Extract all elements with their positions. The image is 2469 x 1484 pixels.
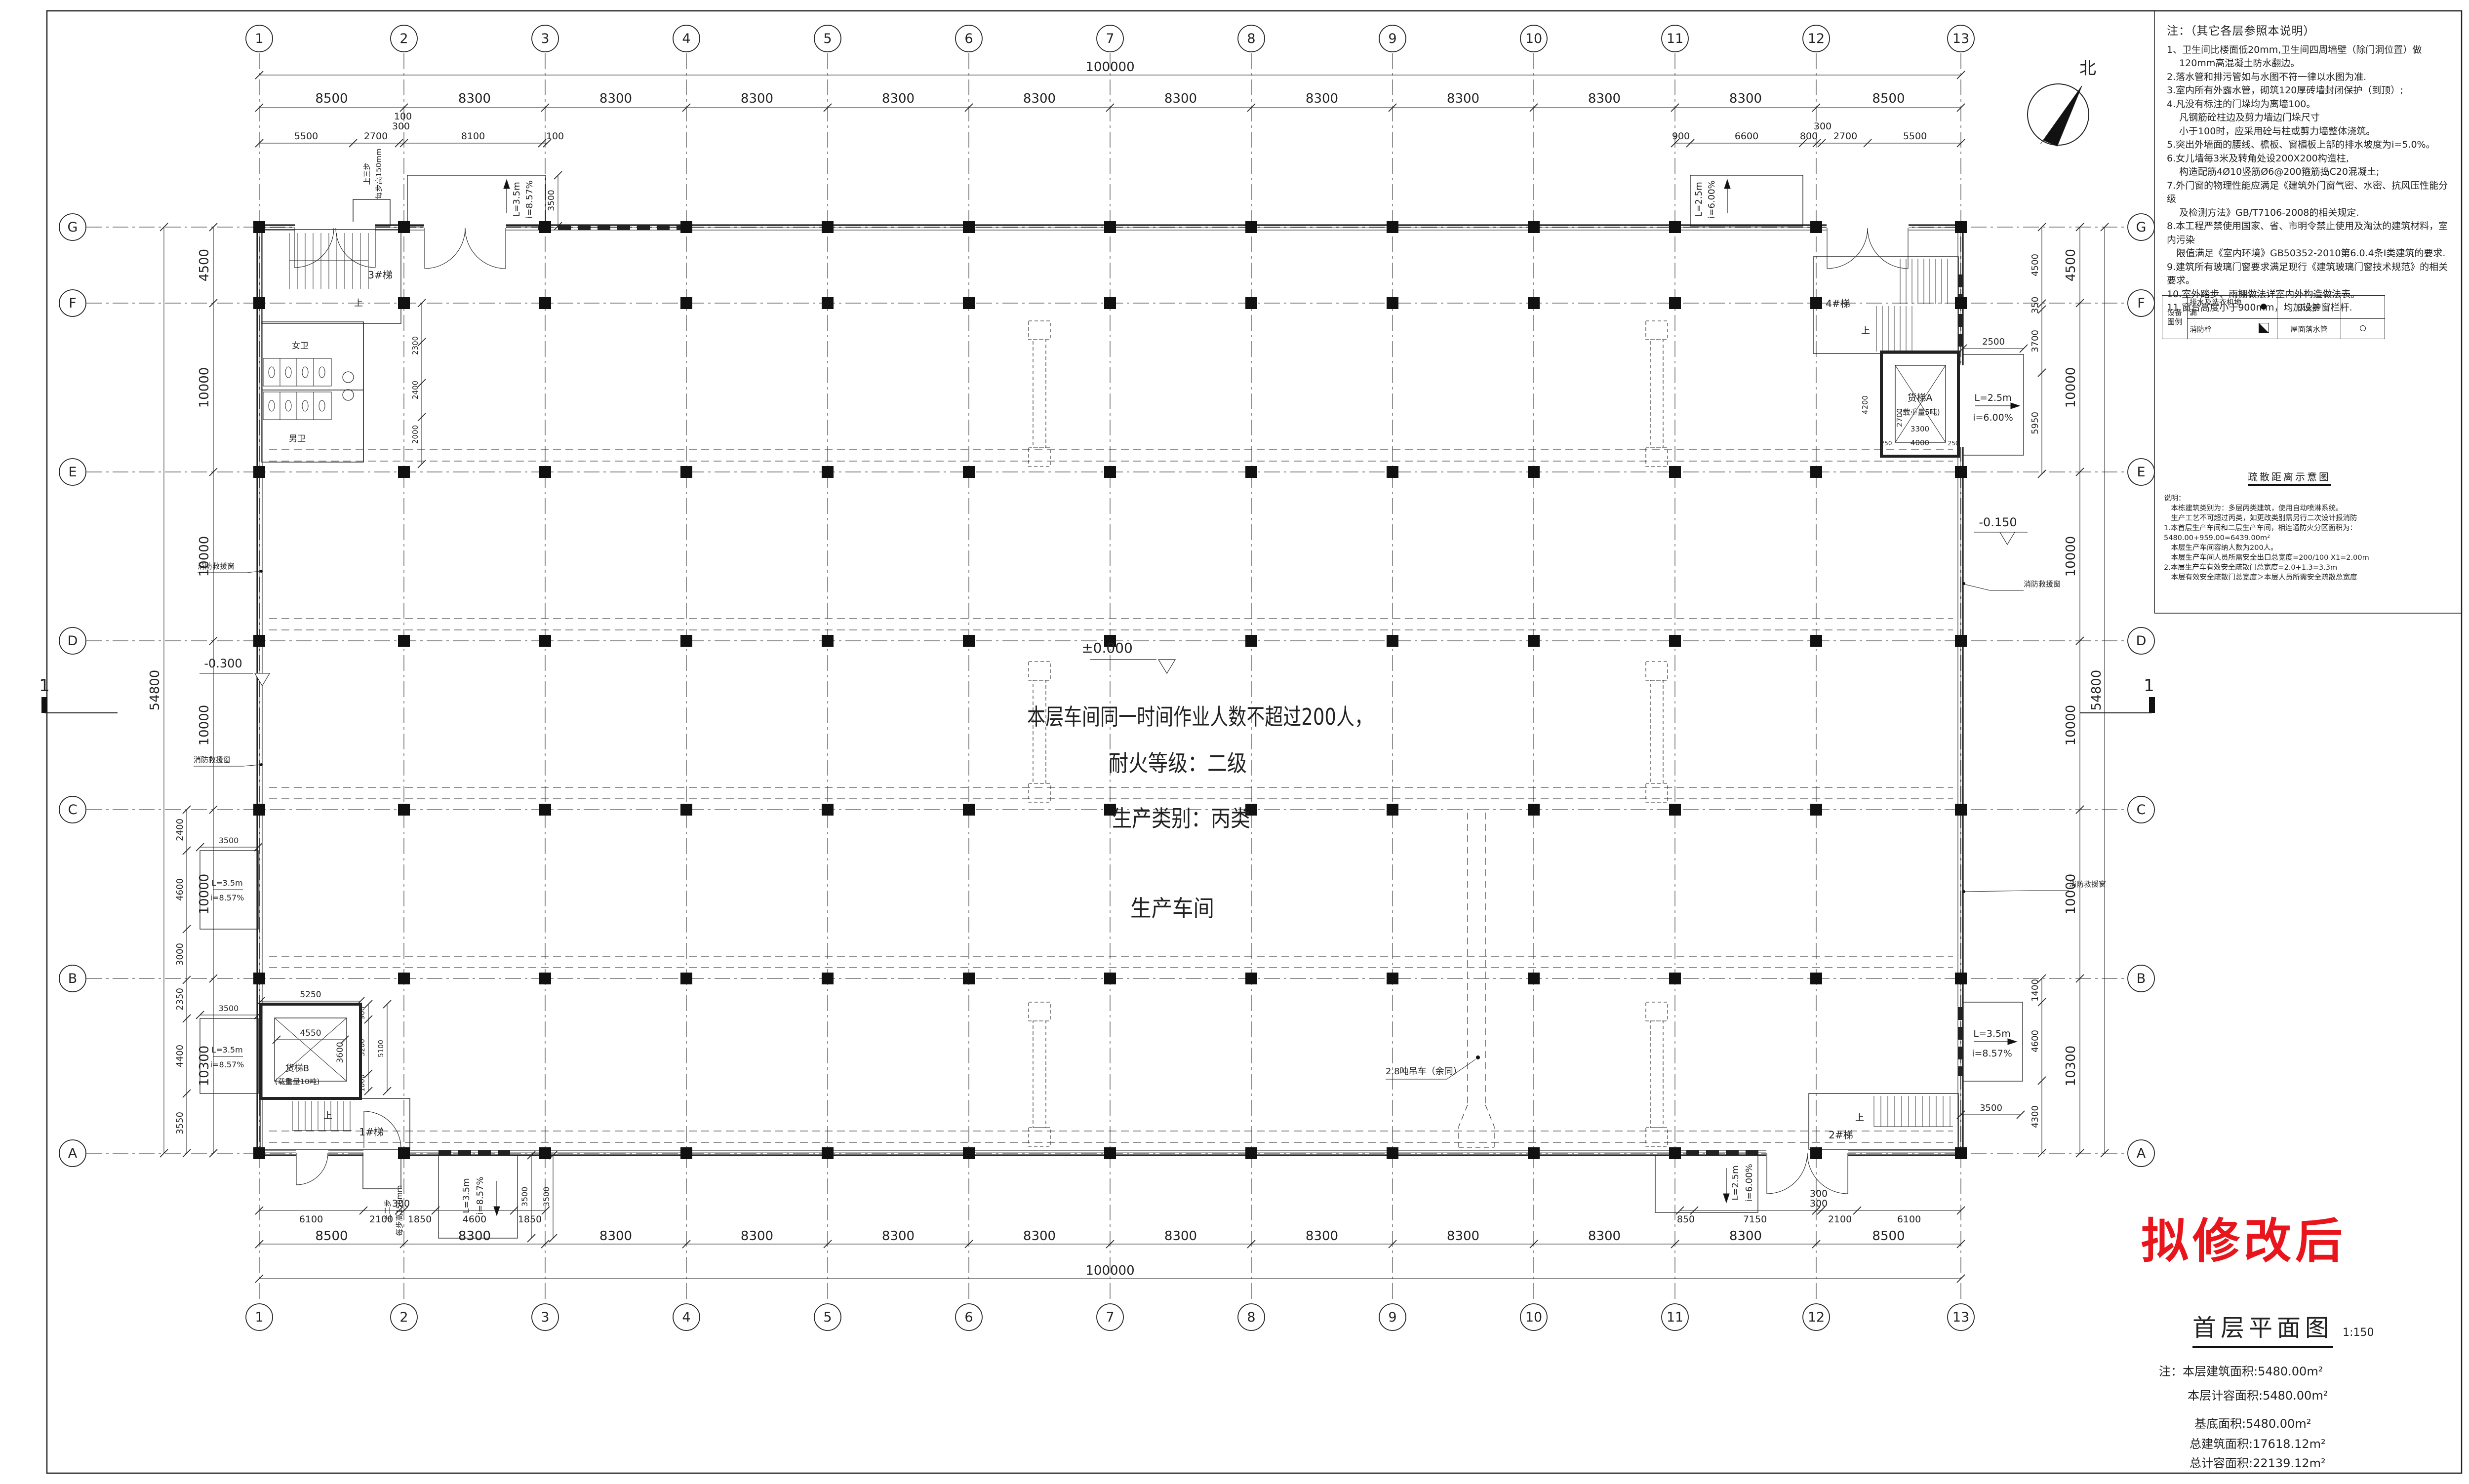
dim-bay: 8300 <box>882 1229 915 1244</box>
grid-bubble-label: 5 <box>823 1310 832 1325</box>
dim-label: 900 <box>358 1007 366 1020</box>
grid-bubble-label: 13 <box>1952 1310 1969 1325</box>
dim-bay: 8500 <box>1872 91 1905 106</box>
column <box>963 973 975 984</box>
grid-bubble-label: A <box>2137 1146 2146 1161</box>
column <box>1669 973 1681 984</box>
dim-label: 2700 <box>1895 408 1904 427</box>
crane-column <box>1646 783 1668 802</box>
downpipe-symbol-icon <box>2360 325 2366 331</box>
crane-column <box>1646 448 1668 467</box>
legend-row: 消防栓 屋面落水管 <box>2162 319 2385 339</box>
dim-sub: 300 <box>1814 121 1832 132</box>
column <box>822 635 834 647</box>
dim-row: 10000 <box>2064 367 2078 408</box>
column <box>1810 221 1822 233</box>
dim-label: 2500 <box>1982 337 2005 347</box>
dim-sub: 6600 <box>1735 131 1758 142</box>
section-marker-label: 1 <box>39 676 50 696</box>
dim-row: 10000 <box>2064 536 2078 577</box>
grid-bubble-label: C <box>2137 802 2146 818</box>
legend-item-extinguisher: 灭火器 <box>2277 296 2341 319</box>
dim-label: 250 <box>1881 440 1892 447</box>
column <box>1387 973 1398 984</box>
dim-sub: 1400 <box>2030 979 2040 1002</box>
drain-symbol-icon <box>2261 304 2267 310</box>
column <box>1387 221 1398 233</box>
column <box>1810 804 1822 816</box>
column <box>1669 297 1681 309</box>
up-label: 上 <box>1855 1113 1864 1123</box>
area-line: 总建筑面积:17618.12m² <box>2190 1434 2328 1451</box>
door-arc <box>1827 228 1868 269</box>
dim-sub: 5500 <box>294 131 318 142</box>
leader-dot <box>260 763 263 766</box>
column <box>539 973 551 984</box>
section-marker <box>41 697 47 713</box>
grid-bubble-label: 9 <box>1388 1310 1396 1325</box>
grid-bubble-label: C <box>68 802 78 818</box>
grid-bubble-label: 3 <box>541 1310 549 1325</box>
drawing-scale: 1:150 <box>2343 1327 2374 1339</box>
dim-sub: 1850 <box>518 1214 542 1225</box>
dim-bay: 8300 <box>458 1229 491 1244</box>
canopy-label: L=2.5m <box>1974 392 2011 403</box>
dim-sub: 3000 <box>175 943 185 966</box>
dim-row: 10000 <box>197 367 212 408</box>
dim-bay: 8300 <box>1729 91 1762 106</box>
level-triangle <box>1158 660 1175 673</box>
dim-sub: 300 <box>392 1198 410 1209</box>
dim-sub: 2350 <box>175 988 185 1011</box>
up-label: 上 <box>1861 326 1870 336</box>
column <box>1245 973 1257 984</box>
squat-toilet-icon <box>302 367 308 378</box>
grid-bubble-label: 1 <box>255 1310 263 1325</box>
dim-bay: 8300 <box>1306 1229 1338 1244</box>
leader <box>194 765 260 766</box>
column <box>398 804 410 816</box>
column <box>1810 973 1822 984</box>
column <box>1245 466 1257 478</box>
lift-a-label: (载重量5吨) <box>1900 408 1940 417</box>
note-line: 3.室内所有外露水管，砌筑120厚砖墙封闭保护（到顶）; <box>2167 84 2457 98</box>
legend-header: 设备 图例 <box>2162 296 2188 339</box>
column <box>253 297 265 309</box>
dim-row: 10000 <box>197 874 212 915</box>
dim-sub: 8100 <box>461 131 485 142</box>
column <box>1669 804 1681 816</box>
dim-label: 4550 <box>300 1028 321 1038</box>
crane-column <box>1029 662 1050 680</box>
level-neg300: -0.300 <box>204 657 242 670</box>
column <box>680 1147 692 1159</box>
column <box>1810 1147 1822 1159</box>
dim-sub: 2100 <box>369 1214 393 1225</box>
grid-bubble-label: 7 <box>1106 1310 1114 1325</box>
dim-sub: 3550 <box>175 1112 185 1134</box>
equipment-legend-table: 设备 图例 排水及洗衣机地漏 灭火器 消防栓 屋面落水管 <box>2162 295 2385 339</box>
column <box>1528 804 1540 816</box>
column <box>253 804 265 816</box>
crane-label: 2.8吨吊车（余同） <box>1386 1066 1462 1077</box>
dim-sub: 4400 <box>175 1045 185 1067</box>
door-arc <box>1767 1153 1807 1194</box>
dim-total-height: 54800 <box>2089 670 2104 711</box>
dim-row: 10300 <box>197 1046 212 1087</box>
dim-sub: 7150 <box>1743 1214 1767 1225</box>
dim-total-height: 54800 <box>148 670 162 711</box>
up-label: 上 <box>354 298 363 309</box>
floor-plan-canvas: 2.8吨吊车（余同）L=3.5mi=8.57%L=2.5mi=6.00%L=2.… <box>0 0 2469 1484</box>
column <box>963 221 975 233</box>
column <box>963 297 975 309</box>
door-arc <box>336 228 375 268</box>
wc-stalls <box>263 358 331 386</box>
column <box>1387 804 1398 816</box>
dim-bay: 8300 <box>741 91 773 106</box>
legend-symbol-cell <box>2341 319 2385 339</box>
grid-bubble-label: G <box>68 220 78 235</box>
area-summary: 注：本层建筑面积:5480.00m² 本层计容面积:5480.00m² 基底面积… <box>2159 1362 2328 1471</box>
dim-sub: 4600 <box>2030 1030 2040 1053</box>
dim-row: 10000 <box>2064 705 2078 746</box>
canopy-label: L=3.5m <box>461 1178 472 1213</box>
door-arc <box>465 228 506 269</box>
column <box>1955 221 1967 233</box>
compass-needle <box>2043 86 2082 146</box>
dim-sub: 2100 <box>1828 1214 1852 1225</box>
column <box>253 466 265 478</box>
door-opening <box>295 222 375 234</box>
grid-bubble-label: 10 <box>1525 1310 1542 1325</box>
rescue-window-label: 消防救援窗 <box>2024 580 2061 588</box>
column <box>1245 297 1257 309</box>
grid-bubble-label: 7 <box>1106 31 1114 46</box>
column <box>253 1147 265 1159</box>
crane-column <box>1646 662 1668 680</box>
canopy-label: L=3.5m <box>512 182 522 217</box>
grid-bubble-label: 13 <box>1952 31 1969 46</box>
grid-bubble-label: F <box>69 296 77 311</box>
dim-label: 4200 <box>1861 395 1870 414</box>
dim-sub: 6100 <box>299 1214 323 1225</box>
area-line: 基底面积:5480.00m² <box>2194 1414 2328 1431</box>
crane-column <box>1650 680 1663 783</box>
arrow-up <box>504 180 510 189</box>
dim-label: 2000 <box>411 425 420 444</box>
dim-label: 3300 <box>1911 425 1929 433</box>
steps-note: 每步高150mm <box>374 149 383 199</box>
workshop-note-line2: 耐火等级：二级 <box>1109 750 1247 777</box>
dim-sub: 4600 <box>463 1214 486 1225</box>
column <box>1955 804 1967 816</box>
grid-bubble-label: E <box>2137 465 2145 480</box>
column <box>822 804 834 816</box>
column <box>680 635 692 647</box>
leader-dot <box>260 570 263 573</box>
crane-column <box>1029 783 1050 802</box>
dim-bay: 8500 <box>315 91 348 106</box>
grid-bubble-label: D <box>2136 633 2147 649</box>
column <box>1669 221 1681 233</box>
area-line: 注：本层建筑面积:5480.00m² <box>2159 1362 2328 1379</box>
column <box>1245 635 1257 647</box>
dim-bay: 8300 <box>599 91 632 106</box>
grid-bubble-label: 10 <box>1525 31 1542 46</box>
canopy-bottom-right <box>1655 1155 1758 1212</box>
drawing-sheet: 2.8吨吊车（余同）L=3.5mi=8.57%L=2.5mi=6.00%L=2.… <box>0 0 2469 1484</box>
dim-sub: 850 <box>1677 1214 1695 1225</box>
canopy-label: i=8.57% <box>475 1176 485 1214</box>
note-line: 9.建筑所有玻璃门窗要求满足现行《建筑玻璃门窗技术规范》的相关要求。 <box>2167 261 2457 288</box>
note-line: 构造配筋4Ø10竖筋Ø6@200箍筋捣C20混凝土; <box>2167 165 2457 179</box>
legend-item-downpipe: 屋面落水管 <box>2277 319 2341 339</box>
note-line: 6.女儿墙每3米及转角处设200X200构造柱, <box>2167 152 2457 166</box>
dim-sub: 5950 <box>2030 412 2040 434</box>
grid-bubble-label: F <box>2137 296 2145 311</box>
steps-note: 上三步 <box>362 162 371 185</box>
column <box>1104 466 1116 478</box>
dim-bay: 8300 <box>741 1229 773 1244</box>
grid-bubble-label: 8 <box>1247 1310 1255 1325</box>
column <box>539 1147 551 1159</box>
female-wc-label: 女卫 <box>292 341 309 351</box>
column <box>963 635 975 647</box>
dim-sub: 100 <box>546 131 564 142</box>
crane-route-dot <box>1476 1055 1480 1059</box>
grid-bubble-label: 3 <box>541 31 549 46</box>
squat-toilet-icon <box>302 400 308 411</box>
general-notes-panel: 注：（其它各层参照本说明） 1、卫生间比楼面低20mm,卫生间四周墙壁（除门洞位… <box>2167 25 2457 315</box>
column <box>822 1147 834 1159</box>
crane-column <box>1646 1128 1668 1146</box>
grid-bubble-label: 2 <box>399 1310 408 1325</box>
grid-bubble-label: 12 <box>1808 31 1825 46</box>
note-line: 小于100时，应采用砼与柱或剪力墙整体浇筑。 <box>2167 125 2457 139</box>
crane-column <box>1033 680 1046 783</box>
canopy-label: L=3.5m <box>211 878 242 888</box>
column <box>680 297 692 309</box>
crane-column <box>1029 1128 1050 1146</box>
dim-label: 3500 <box>219 1004 239 1013</box>
column <box>1669 635 1681 647</box>
dim-sub: 4600 <box>175 878 185 901</box>
arrow-down <box>494 1207 500 1215</box>
column <box>398 973 410 984</box>
canopy-label: i=8.57% <box>524 180 535 218</box>
leader-dot <box>1962 890 1965 893</box>
dim-bay: 8300 <box>882 91 915 106</box>
column <box>1387 1147 1398 1159</box>
grid-bubble-label: 9 <box>1388 31 1396 46</box>
dim-bay: 8300 <box>1023 91 1056 106</box>
notes-title: 注：（其它各层参照本说明） <box>2167 25 2457 39</box>
crane-column <box>1033 1021 1046 1128</box>
grid-bubble-label: 11 <box>1667 31 1683 46</box>
legend-symbol-cell <box>2341 296 2385 319</box>
dim-label: 1000 <box>358 1074 366 1092</box>
male-wc-label: 男卫 <box>289 434 306 444</box>
arrow-down <box>1723 1194 1729 1203</box>
column <box>1245 1147 1257 1159</box>
squat-toilet-icon <box>269 367 275 378</box>
grid-bubble-label: 6 <box>964 31 973 46</box>
column <box>822 466 834 478</box>
dim-sub: 350 <box>2030 297 2040 313</box>
workshop-note-line1: 本层车间同一时间作业人数不超过200人， <box>1027 703 1373 730</box>
column <box>963 804 975 816</box>
workshop-name: 生产车间 <box>1130 895 1214 922</box>
column <box>539 466 551 478</box>
lift-a-label: 货梯A <box>1908 392 1933 403</box>
column <box>398 1147 410 1159</box>
lift-b-label: (载重量10吨) <box>275 1077 320 1086</box>
grid-bubble-label: 5 <box>823 31 832 46</box>
column <box>680 973 692 984</box>
dim-row: 4500 <box>197 249 212 281</box>
column <box>963 1147 975 1159</box>
dim-label: 2300 <box>411 336 420 355</box>
leader <box>1965 891 2069 892</box>
dim-label: 5250 <box>300 990 321 1000</box>
canopy-label: i=8.57% <box>1972 1048 2012 1059</box>
column <box>1245 221 1257 233</box>
column <box>539 635 551 647</box>
canopy-label: L=3.5m <box>1973 1028 2010 1039</box>
evac-line: 本层生产车间人员所需安全出口总宽度=200/100 X1=2.00m <box>2164 553 2458 563</box>
door-arc <box>294 228 334 268</box>
evacuation-title: 疏散距离示意图 <box>2248 472 2331 486</box>
dim-bay: 8300 <box>1306 91 1338 106</box>
canopy-label: L=3.5m <box>211 1045 242 1054</box>
column <box>1528 221 1540 233</box>
note-line: 120mm高混凝土防水翻边。 <box>2167 57 2457 71</box>
arrow-right <box>2011 403 2020 409</box>
column <box>822 973 834 984</box>
dim-sub: 800 <box>1800 131 1818 142</box>
canopy-label: L=2.5m <box>1730 1165 1741 1200</box>
note-line: 及检测方法》GB/T7106-2008的相关规定. <box>2167 206 2457 220</box>
dim-bay: 8300 <box>599 1229 632 1244</box>
north-label: 北 <box>2079 59 2096 78</box>
evac-line: 本栋建筑类别为：多层丙类建筑，使用自动喷淋系统。 <box>2164 504 2458 513</box>
dim-sub: 300 <box>392 121 410 132</box>
column <box>1810 297 1822 309</box>
up-label: 上 <box>323 1111 332 1121</box>
column <box>1528 973 1540 984</box>
legend-item-drain: 排水及洗衣机地漏 <box>2188 296 2250 319</box>
dim-label: 3500 <box>547 190 557 211</box>
dim-label: 3500 <box>520 1187 529 1207</box>
lift-b-label: 货梯B <box>285 1063 309 1074</box>
door-arc <box>425 228 465 269</box>
column <box>1104 297 1116 309</box>
grid-bubble-label: 8 <box>1247 31 1255 46</box>
dim-sub: 300 <box>1810 1198 1828 1209</box>
column <box>1528 635 1540 647</box>
column <box>398 466 410 478</box>
column <box>1955 1147 1967 1159</box>
grid-bubble-label: B <box>68 971 78 986</box>
dim-row: 4500 <box>2064 249 2078 281</box>
dim-label: 250 <box>1948 440 1959 447</box>
door-arc <box>1807 1153 1848 1194</box>
squat-toilet-icon <box>319 400 325 411</box>
legend-header-line: 设备 <box>2164 308 2185 317</box>
stair3-label: 3#梯 <box>368 269 392 281</box>
level-zero: ±0.000 <box>1081 640 1133 656</box>
column <box>822 221 834 233</box>
note-line: 1、卫生间比楼面低20mm,卫生间四周墙壁（除门洞位置）做 <box>2167 43 2457 57</box>
canopy-label: i=6.00% <box>1973 412 2013 423</box>
column <box>1810 635 1822 647</box>
dim-label: 3200 <box>358 1039 366 1056</box>
column <box>1955 297 1967 309</box>
legend-row: 设备 图例 排水及洗衣机地漏 灭火器 <box>2162 296 2385 319</box>
stair-room-1 <box>261 1098 410 1149</box>
column <box>680 804 692 816</box>
column <box>1528 1147 1540 1159</box>
dim-total-width: 100000 <box>1085 60 1134 75</box>
dim-row: 10000 <box>197 705 212 746</box>
dim-sub: 6100 <box>1897 1214 1921 1225</box>
column <box>1810 466 1822 478</box>
column <box>398 635 410 647</box>
note-line: 4.凡没有标注的门垛均为离墙100。 <box>2167 98 2457 112</box>
arrow-right <box>2008 1039 2017 1045</box>
dim-label: 2400 <box>411 381 420 399</box>
column <box>1387 466 1398 478</box>
column <box>680 221 692 233</box>
note-line: 5.突出外墙面的腰线、檐板、窗楣板上部的排水坡度为i=5.0%。 <box>2167 138 2457 152</box>
dim-bay: 8300 <box>1447 1229 1479 1244</box>
crane-route <box>1459 1105 1468 1147</box>
dim-label: 3500 <box>219 836 239 845</box>
grid-bubble-label: A <box>68 1146 78 1161</box>
dim-bay: 8300 <box>1164 91 1197 106</box>
dim-bay: 8500 <box>315 1229 348 1244</box>
level-triangle <box>2000 532 2015 545</box>
dim-bay: 8300 <box>1164 1229 1197 1244</box>
stair4-label: 4#梯 <box>1826 298 1850 310</box>
column <box>253 221 265 233</box>
canopy-label: i=8.57% <box>210 893 244 902</box>
column <box>1528 297 1540 309</box>
dim-sub: 4300 <box>2030 1105 2040 1128</box>
dim-bay: 8300 <box>1588 91 1621 106</box>
area-line: 总计容面积:22139.12m² <box>2190 1453 2328 1471</box>
leader <box>1965 585 2024 590</box>
grid-bubble-label: 2 <box>399 31 408 46</box>
column <box>1528 466 1540 478</box>
dim-label: 3600 <box>335 1042 345 1063</box>
workshop-note-line3: 生产类别：丙类 <box>1112 805 1250 832</box>
evac-line: 本层有效安全疏散门总宽度＞本层人员所需安全疏散总宽度 <box>2164 573 2458 583</box>
canopy-label: i=6.00% <box>1744 1164 1754 1202</box>
grid-bubble-label: D <box>68 633 78 649</box>
evac-line: 2.本层生产车有效安全疏散门总宽度=2.0+1.3=3.3m <box>2164 563 2458 573</box>
note-line: 8.本工程严禁使用国家、省、市明令禁止使用及淘汰的建筑材料，室内污染 <box>2167 220 2457 247</box>
dim-sub: 5500 <box>1903 131 1927 142</box>
legend-symbol-cell <box>2250 296 2277 319</box>
rescue-window-label: 消防救援窗 <box>194 755 231 764</box>
evacuation-notes-box: 疏散距离示意图 说明： 本栋建筑类别为：多层丙类建筑，使用自动喷淋系统。 生产工… <box>2164 472 2458 583</box>
section-marker-label: 1 <box>2144 676 2154 696</box>
grid-bubble-label: 11 <box>1667 1310 1683 1325</box>
note-line: 凡钢筋砼柱边及剪力墙边门垛尺寸 <box>2167 111 2457 125</box>
crane-column <box>1029 1002 1050 1021</box>
